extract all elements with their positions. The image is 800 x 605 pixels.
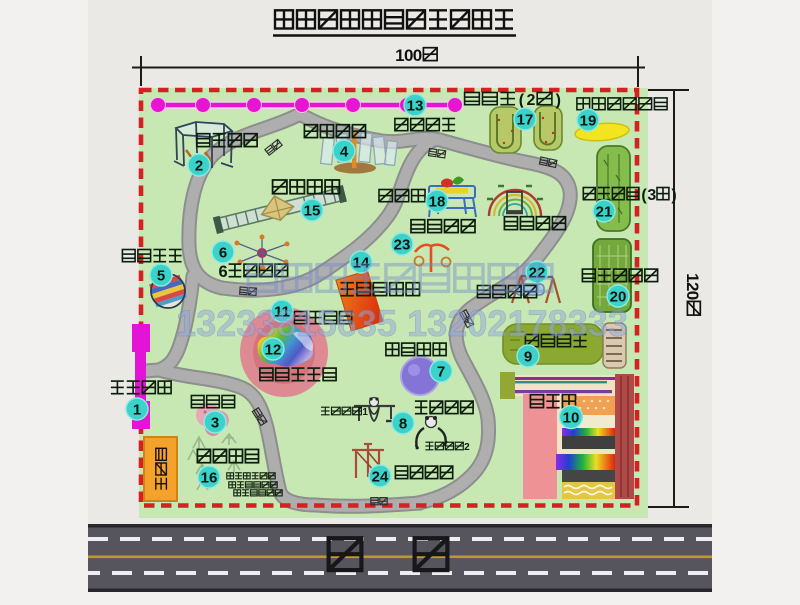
svg-text:16: 16 <box>201 470 218 487</box>
svg-text:2: 2 <box>526 92 535 109</box>
svg-text:17: 17 <box>517 112 534 129</box>
svg-text:(: ( <box>519 92 525 109</box>
svg-text:): ) <box>671 187 676 204</box>
svg-text:3: 3 <box>647 187 656 204</box>
svg-text:5: 5 <box>157 268 165 285</box>
svg-text:15: 15 <box>304 203 321 220</box>
svg-text:9: 9 <box>524 349 532 366</box>
svg-text:18: 18 <box>429 194 446 211</box>
svg-text:13: 13 <box>407 98 424 115</box>
svg-text:23: 23 <box>394 237 411 254</box>
svg-text:13233815635 13202178333: 13233815635 13202178333 <box>176 303 628 344</box>
svg-text:12: 12 <box>265 342 282 359</box>
svg-text:3: 3 <box>211 415 219 432</box>
svg-text:): ) <box>556 92 561 109</box>
svg-text:19: 19 <box>580 113 597 130</box>
svg-text:1: 1 <box>362 407 368 418</box>
svg-text:6: 6 <box>219 263 228 281</box>
svg-text:21: 21 <box>596 204 613 221</box>
svg-text:0: 0 <box>413 46 422 65</box>
svg-text:8: 8 <box>399 416 407 433</box>
svg-text:1: 1 <box>133 402 141 419</box>
svg-text:7: 7 <box>437 364 445 381</box>
svg-text:24: 24 <box>372 469 389 486</box>
svg-text:2: 2 <box>195 158 203 175</box>
svg-text:0: 0 <box>683 291 702 300</box>
svg-text:6: 6 <box>219 245 227 262</box>
svg-text:2: 2 <box>464 442 470 453</box>
svg-text:4: 4 <box>340 144 349 161</box>
svg-text:10: 10 <box>563 410 580 427</box>
